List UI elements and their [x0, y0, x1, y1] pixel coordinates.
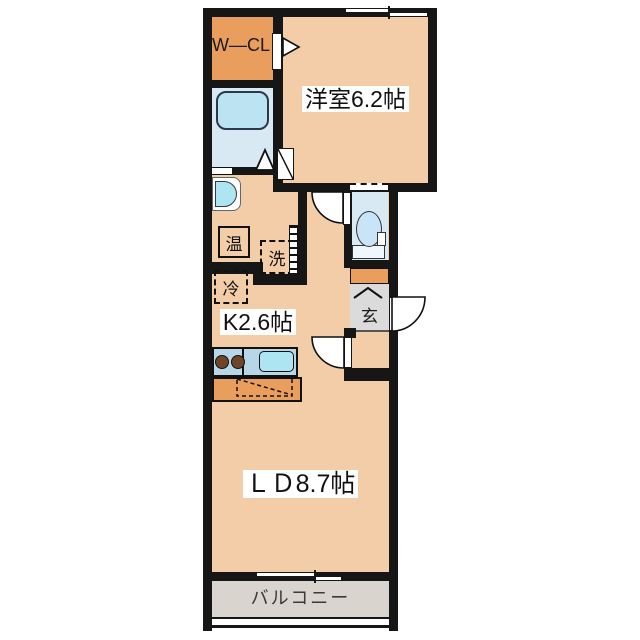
- washroom-sliding-door: [289, 225, 298, 274]
- window-bedroom-center-tick: [388, 6, 390, 19]
- wall-hall-south: [344, 368, 398, 381]
- living-dining-label: ＬＤ8.7帖: [243, 470, 359, 499]
- balcony-label: バルコニー: [251, 584, 351, 610]
- hall-door-leaf: [344, 337, 352, 368]
- window-balcony-sash-right: [314, 576, 342, 581]
- entrance-label-wrap: 玄: [350, 302, 389, 326]
- front-door-leaf: [389, 297, 398, 331]
- floor-plan: 温 洗 冷 洋室6.2帖 K2.6帖 ＬＤ8.7帖 バルコ: [0, 0, 640, 640]
- bedroom-door-leaf: [277, 148, 294, 180]
- window-bedroom-sash-right: [389, 12, 428, 17]
- window-balcony-sash-left: [256, 572, 317, 577]
- kitchen-label-wrap: K2.6帖: [208, 307, 308, 337]
- toilet-tank: [352, 245, 385, 259]
- wall-right-upper: [428, 8, 437, 192]
- toilet-door-leaf: [343, 192, 351, 225]
- bedroom-label-wrap: 洋室6.2帖: [283, 84, 428, 114]
- washing-machine-label: 洗: [269, 245, 286, 270]
- water-heater-box: 温: [218, 226, 250, 258]
- refrigerator-label: 冷: [223, 275, 240, 300]
- bathtub: [216, 91, 269, 130]
- wall-right-lower: [389, 183, 398, 631]
- toilet-vent-window: [350, 183, 388, 190]
- stove-burner-right: [231, 355, 245, 369]
- window-bedroom-sash-left: [345, 8, 390, 13]
- wall-wcl-south: [203, 80, 283, 88]
- refrigerator-box: 冷: [214, 270, 248, 304]
- balcony-rail-outer: [203, 625, 398, 628]
- window-balcony-center-tick: [314, 570, 316, 583]
- balcony-rail-inner: [212, 617, 389, 619]
- wall-washroom-east: [298, 183, 307, 285]
- wcl-door-leaf: [272, 33, 282, 70]
- stove-burner-left: [215, 355, 229, 369]
- wcl-label: W―CL: [212, 35, 270, 56]
- kitchen-lower-counter: [212, 377, 302, 402]
- balcony-label-wrap: バルコニー: [212, 584, 389, 610]
- wall-toilet-south: [344, 260, 398, 268]
- living-dining-label-wrap: ＬＤ8.7帖: [212, 467, 389, 501]
- water-heater-label: 温: [226, 230, 243, 255]
- kitchen-label: K2.6帖: [220, 309, 296, 335]
- wall-bath-south: [232, 167, 275, 175]
- entrance-label: 玄: [361, 302, 378, 327]
- bathroom-threshold: [212, 167, 234, 175]
- toilet-flush-box: [377, 232, 386, 246]
- shoe-cabinet: [350, 268, 389, 284]
- kitchen-sink: [259, 351, 294, 372]
- wcl-label-wrap: W―CL: [210, 33, 272, 57]
- bedroom-label: 洋室6.2帖: [302, 86, 409, 112]
